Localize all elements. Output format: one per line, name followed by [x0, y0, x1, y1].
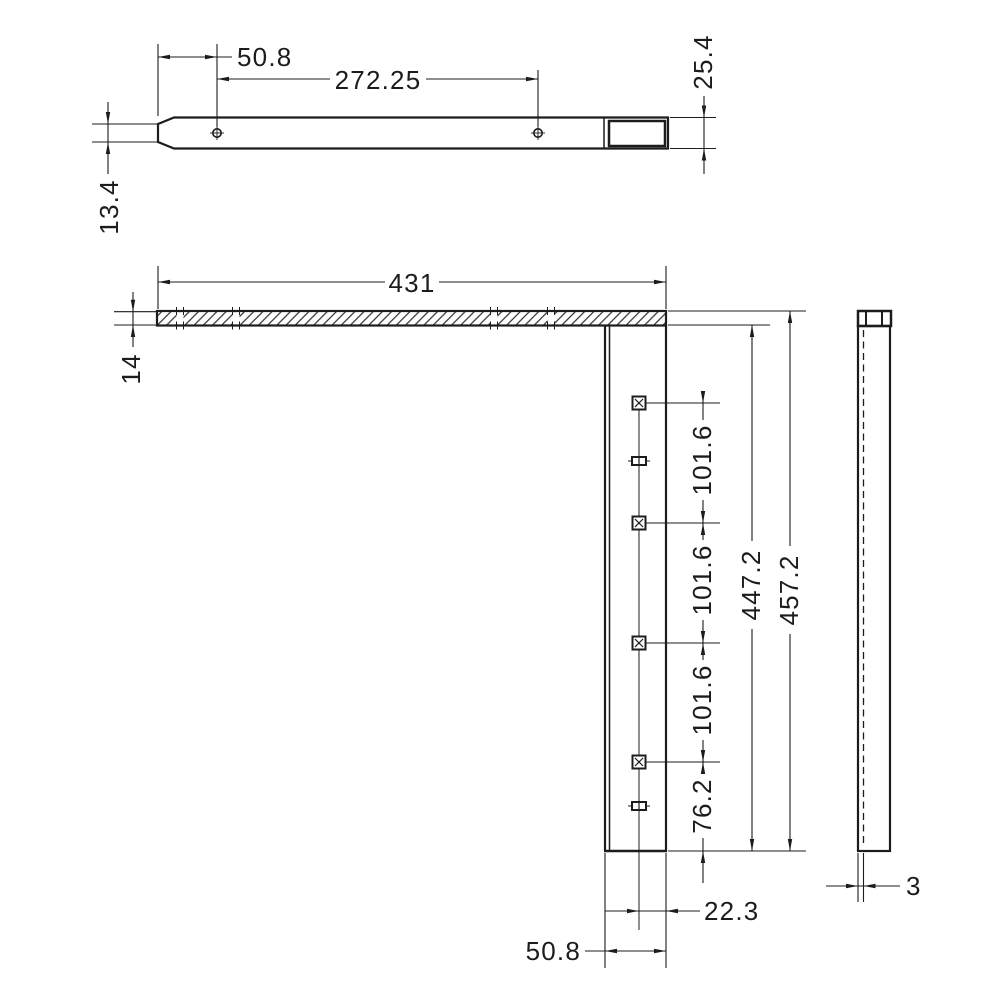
front-view: 431 14 [114, 266, 806, 968]
top-view-end-block [609, 121, 665, 146]
dim-hole-pitch-chain: 101.6 101.6 101.6 76.2 [687, 391, 718, 883]
top-view-bar-outline [158, 118, 668, 149]
drawing-canvas: 13.4 50.8 272.25 25.4 [0, 0, 1000, 1000]
technical-drawing: 13.4 50.8 272.25 25.4 [0, 0, 1000, 1000]
hole-marker [210, 126, 224, 140]
dim-length-label: 431 [389, 268, 436, 298]
dim-sheet-thickness: 3 [826, 853, 922, 902]
dim-end-height-label: 13.4 [94, 179, 124, 234]
top-view: 13.4 50.8 272.25 25.4 [92, 34, 718, 234]
dim-outer-height-label: 457.2 [774, 554, 804, 625]
dim-end-width-label: 25.4 [688, 34, 718, 89]
dim-end-height: 13.4 [92, 102, 158, 235]
side-view-cap [858, 311, 891, 326]
dim-inner-height: 447.2 [668, 325, 770, 851]
square-hole [633, 637, 646, 650]
dim-leg-width: 50.8 [526, 936, 666, 966]
dim-hole-offset-label: 50.8 [237, 42, 292, 72]
dim-end-width: 25.4 [670, 34, 718, 174]
dim-sheet-thickness-label: 3 [906, 871, 922, 901]
dim-pitch-c-label: 101.6 [687, 664, 717, 735]
square-hole [633, 756, 646, 769]
side-view-body [858, 326, 890, 851]
slot-hole [628, 802, 650, 810]
dim-length: 431 [158, 266, 666, 309]
dim-pitch-b-label: 101.6 [687, 544, 717, 615]
slot-hole [628, 457, 650, 465]
dim-pitch-a-label: 101.6 [687, 424, 717, 495]
dim-leg-width-label: 50.8 [526, 936, 581, 966]
dim-edge-offset-label: 22.3 [704, 896, 759, 926]
dim-bottom-offset-label: 76.2 [687, 778, 717, 833]
side-view: 3 [826, 311, 922, 902]
dim-plate-thickness-label: 14 [116, 353, 146, 384]
hole-marker [531, 126, 545, 140]
dim-hole-offset: 50.8 [158, 42, 292, 127]
dim-plate-thickness: 14 [114, 292, 157, 385]
square-hole [633, 397, 646, 410]
dim-hole-spacing-label: 272.25 [335, 65, 422, 95]
square-hole [633, 517, 646, 530]
dim-inner-height-label: 447.2 [736, 549, 766, 620]
